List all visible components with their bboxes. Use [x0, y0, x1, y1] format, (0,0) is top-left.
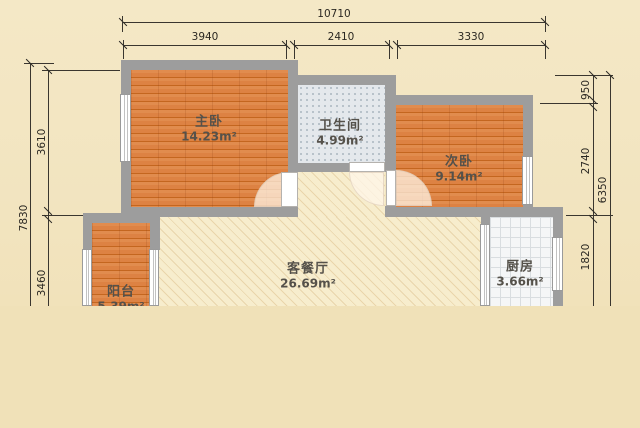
dim-label-top-total: 10710 — [317, 8, 350, 20]
dim-label-right-seg3: 1820 — [580, 244, 592, 271]
window-master-bedroom — [120, 94, 131, 162]
wall — [288, 70, 298, 172]
dim-line-left-total — [30, 63, 31, 306]
floor-plan: 主卧 14.23m² 卫生间 4.99m² 次卧 9.14m² 客餐厅 26.6… — [0, 0, 640, 306]
room-area: 9.14m² — [435, 170, 482, 184]
dim-ext — [389, 40, 390, 59]
window-balcony-left — [82, 249, 92, 306]
room-label-balcony: 阳台 5.39m² — [97, 281, 144, 307]
room-area: 5.39m² — [97, 300, 144, 307]
window-balcony-living — [149, 249, 159, 306]
room-label-master-bedroom: 主卧 14.23m² — [181, 111, 237, 144]
door-leaf-bathroom — [349, 162, 385, 172]
dim-label-right-total: 6350 — [597, 177, 609, 204]
door-leaf-second-bedroom — [386, 170, 396, 206]
dim-label-top-seg2: 2410 — [328, 31, 355, 43]
room-label-living-dining: 客餐厅 26.69m² — [280, 258, 336, 291]
dim-ext — [545, 40, 546, 59]
door-leaf-master-bedroom — [281, 172, 298, 207]
room-label-bathroom: 卫生间 4.99m² — [316, 115, 363, 148]
room-label-kitchen: 厨房 3.66m² — [496, 256, 543, 289]
dim-line-right-total — [610, 75, 611, 306]
dim-ext — [122, 16, 123, 32]
dim-line-top-seg2 — [294, 45, 389, 46]
dim-ext — [555, 75, 613, 76]
door-kitchen-sliding — [480, 224, 490, 306]
dim-line-top-seg1 — [123, 45, 286, 46]
dim-ext — [42, 70, 120, 71]
wall — [288, 163, 349, 172]
dim-line-top-total — [123, 22, 545, 23]
window-second-bedroom — [522, 156, 533, 205]
dim-ext — [545, 16, 546, 32]
dim-ext — [286, 40, 287, 59]
wall — [121, 60, 298, 70]
room-name: 次卧 — [435, 151, 482, 170]
room-area: 14.23m² — [181, 130, 237, 144]
wall — [385, 207, 563, 217]
wall — [385, 95, 533, 105]
room-name: 主卧 — [181, 111, 237, 130]
room-label-second-bedroom: 次卧 9.14m² — [435, 151, 482, 184]
dim-ext — [397, 40, 398, 59]
room-name: 阳台 — [97, 281, 144, 300]
room-name: 厨房 — [496, 256, 543, 275]
dim-line-top-seg3 — [397, 45, 545, 46]
window-kitchen — [552, 237, 563, 291]
wall — [83, 213, 160, 223]
dim-ext — [42, 215, 83, 216]
room-name: 卫生间 — [316, 115, 363, 134]
dim-ext — [123, 40, 124, 59]
dim-label-left-seg2: 3460 — [36, 270, 48, 297]
dim-label-right-seg1: 950 — [580, 80, 592, 100]
dim-label-left-total: 7830 — [18, 205, 30, 232]
dim-ext — [294, 40, 295, 59]
room-area: 4.99m² — [316, 134, 363, 148]
dim-label-left-seg1: 3610 — [36, 129, 48, 156]
wall — [288, 75, 396, 85]
room-area: 26.69m² — [280, 277, 336, 291]
room-area: 3.66m² — [496, 275, 543, 289]
dim-line-right-segs — [593, 75, 594, 306]
wall — [385, 75, 396, 170]
wall — [150, 213, 160, 250]
wall — [288, 206, 298, 217]
dim-label-right-seg2: 2740 — [580, 148, 592, 175]
room-name: 客餐厅 — [280, 258, 336, 277]
dim-label-top-seg3: 3330 — [458, 31, 485, 43]
dim-label-top-seg1: 3940 — [192, 31, 219, 43]
dim-line-left-segs — [48, 70, 49, 306]
